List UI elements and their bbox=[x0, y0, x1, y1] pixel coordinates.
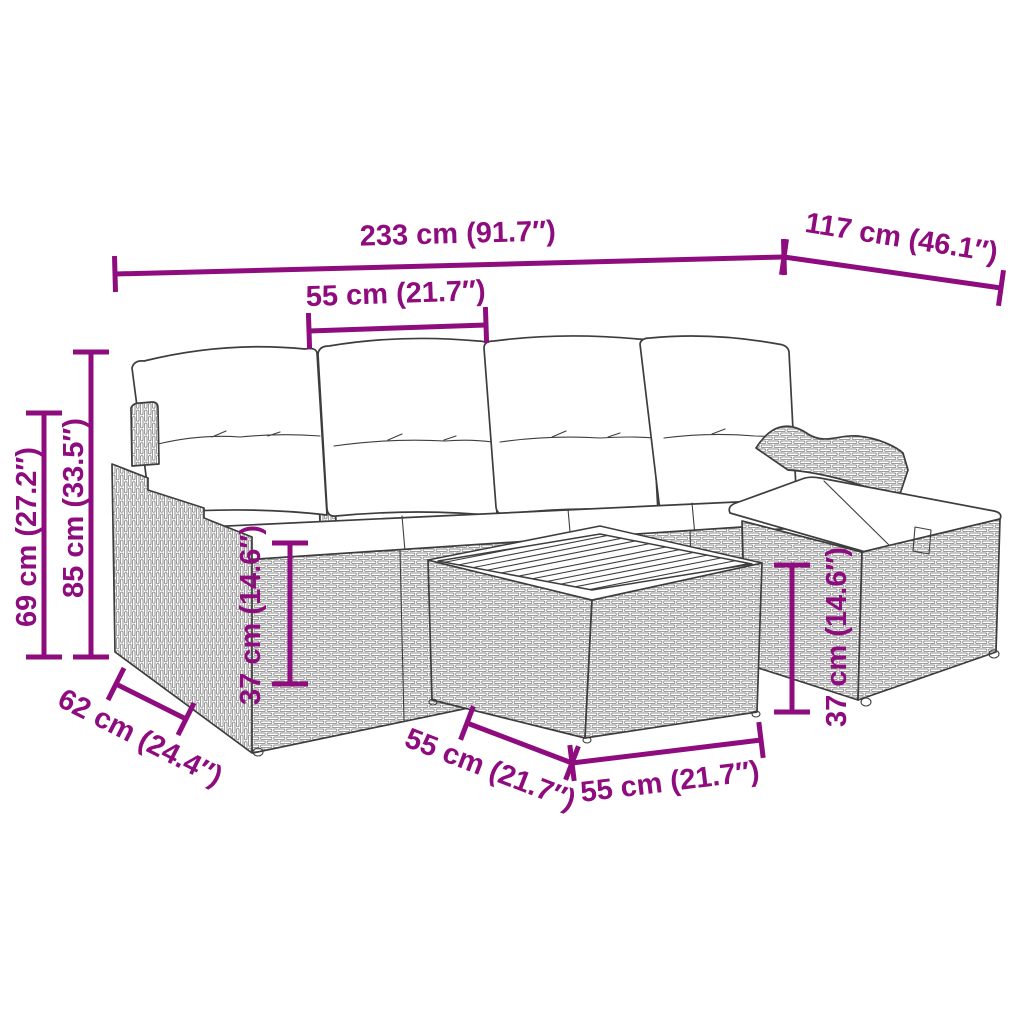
foot bbox=[861, 698, 871, 706]
back-cushion-3 bbox=[484, 336, 658, 514]
dim-label-seat-height-left: 37 cm (14.6″) bbox=[235, 525, 267, 705]
dim-label-table-depth: 55 cm (21.7″) bbox=[400, 722, 579, 816]
dim-label-seat-width: 55 cm (21.7″) bbox=[305, 275, 486, 313]
dim-overall-depth: 117 cm (46.1″) bbox=[782, 207, 1004, 306]
dim-label-table-width: 55 cm (21.7″) bbox=[579, 755, 761, 809]
dim-arm-height: 69 cm (27.2″) bbox=[11, 413, 62, 657]
dim-seat-width: 55 cm (21.7″) bbox=[305, 275, 486, 349]
left-armrest-post bbox=[131, 402, 159, 466]
dim-label-overall-depth: 117 cm (46.1″) bbox=[803, 207, 1000, 269]
sofa-back-cushions bbox=[132, 336, 797, 516]
dim-label-seat-height-right: 37 cm (14.6″) bbox=[821, 547, 853, 727]
dim-label-back-height: 85 cm (33.5″) bbox=[58, 418, 90, 598]
back-cushion-4 bbox=[640, 336, 797, 510]
back-cushion-1 bbox=[132, 347, 327, 515]
dimension-diagram-canvas: 233 cm (91.7″) 117 cm (46.1″) 55 cm (21.… bbox=[0, 0, 1024, 1024]
back-cushion-2 bbox=[318, 338, 497, 516]
dim-back-height: 85 cm (33.5″) bbox=[58, 352, 109, 657]
side-table bbox=[428, 526, 764, 743]
dim-label-arm-height: 69 cm (27.2″) bbox=[11, 447, 43, 627]
dim-label-overall-width: 233 cm (91.7″) bbox=[359, 215, 556, 252]
